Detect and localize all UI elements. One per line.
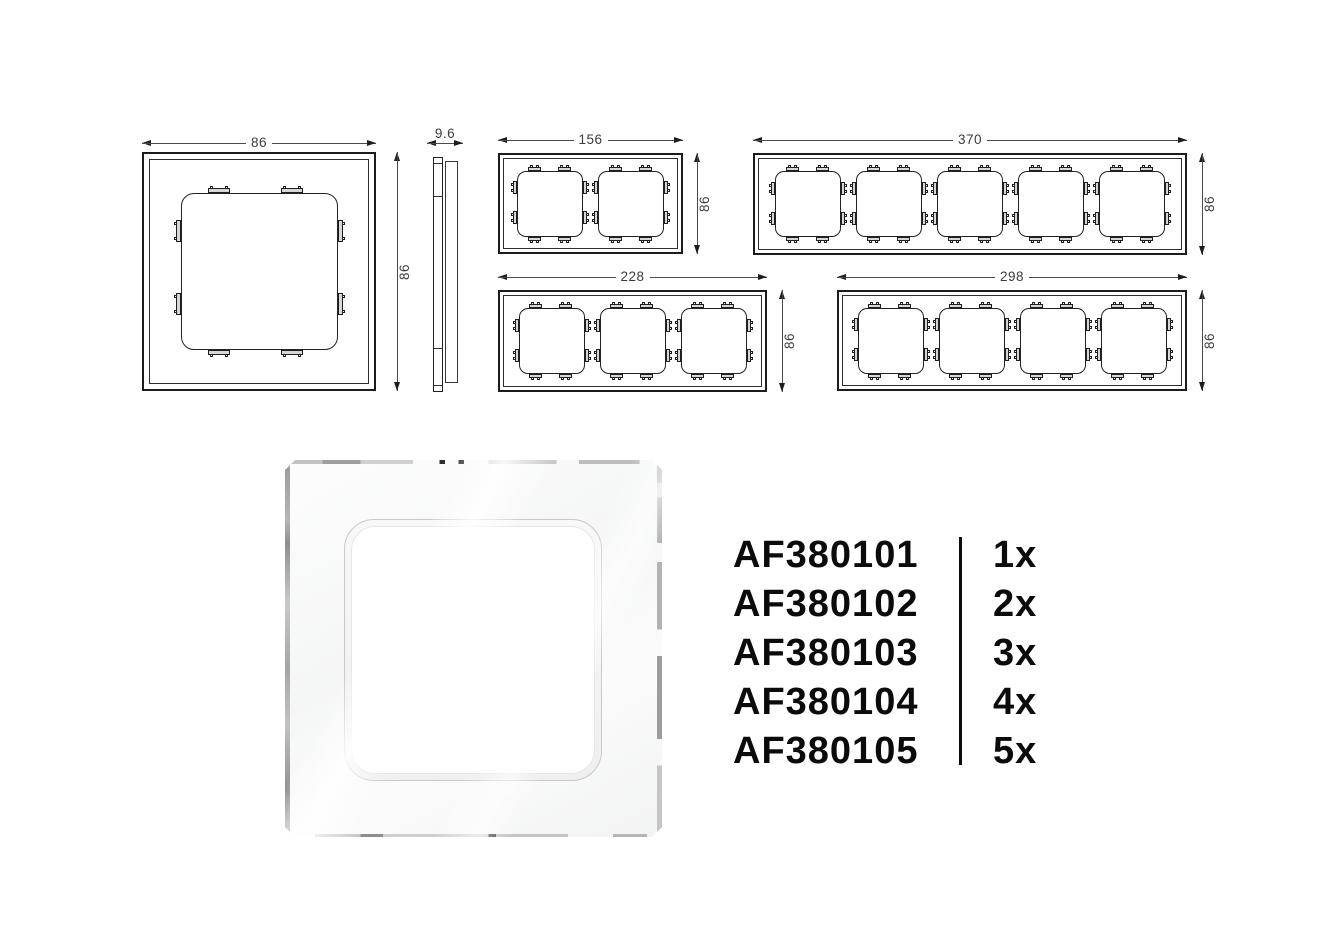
module-opening	[600, 308, 666, 374]
module-clip-tab	[1140, 237, 1153, 241]
module-clip-tab	[1084, 212, 1088, 225]
arrow-down-icon	[394, 382, 400, 391]
module-clip-tab	[1003, 182, 1007, 195]
module-clip-tab	[1140, 167, 1153, 171]
module-clip-tab	[691, 374, 704, 378]
module-clip-tab	[596, 349, 600, 362]
module-clip-tab	[978, 237, 991, 241]
drawing-side-view-glass	[433, 157, 443, 392]
drawing-frame-1gang-front	[142, 152, 376, 391]
product-list: AF380101 1x AF380102 2x AF380103 3x AF38…	[733, 531, 1073, 776]
dimension-height-1gang: 86	[391, 152, 404, 391]
module-clip-tab	[922, 212, 926, 225]
module-clip-tab	[721, 374, 734, 378]
module-clip-tab	[338, 220, 343, 242]
module-clip-tab	[978, 167, 991, 171]
drawing-frame-3gang	[498, 290, 767, 392]
module-clip-tab	[897, 237, 910, 241]
module-clip-tab	[1111, 304, 1124, 308]
module-clip-tab	[609, 237, 622, 241]
arrow-down-icon	[694, 245, 700, 254]
dimension-width-5gang: 370	[753, 134, 1187, 147]
module-clip-tab	[610, 374, 623, 378]
module-clip-tab	[558, 167, 571, 171]
product-code: AF380104	[733, 678, 993, 727]
module-clip-tab	[1016, 348, 1020, 361]
module-opening	[598, 171, 664, 237]
dimension-depth-side: 9.6	[427, 137, 463, 150]
module-clip-tab	[897, 167, 910, 171]
product-quantity: 1x	[993, 531, 1037, 580]
dimension-label: 86	[396, 259, 414, 285]
dimension-label: 86	[781, 328, 799, 354]
module-clip-tab	[640, 374, 653, 378]
module-clip-tab	[585, 349, 589, 362]
arrow-right-icon	[454, 140, 463, 146]
product-code: AF380103	[733, 629, 993, 678]
module-opening	[775, 171, 841, 237]
module-clip-tab	[1086, 318, 1090, 331]
module-clip-tab	[610, 304, 623, 308]
module-clip-tab	[747, 319, 751, 332]
module-clip-tab	[208, 350, 230, 355]
module-clip-tab	[594, 211, 598, 224]
drawing-frame-2gang	[498, 153, 683, 254]
module-clip-tab	[771, 182, 775, 195]
module-clip-tab	[609, 167, 622, 171]
dimension-label: 86	[1201, 328, 1219, 354]
module-clip-tab	[1097, 318, 1101, 331]
module-opening	[681, 308, 747, 374]
arrow-down-icon	[1199, 246, 1205, 255]
module-opening	[1020, 308, 1086, 374]
dimension-width-2gang: 156	[498, 134, 683, 147]
dimension-label: 86	[696, 191, 714, 217]
module-clip-tab	[1095, 212, 1099, 225]
product-row: AF380102 2x	[733, 580, 1073, 629]
module-clip-tab	[841, 212, 845, 225]
module-clip-tab	[640, 304, 653, 308]
module-clip-tab	[841, 182, 845, 195]
product-quantity: 2x	[993, 580, 1037, 629]
product-quantity: 5x	[993, 727, 1037, 776]
product-photo-1gang-frame	[285, 460, 662, 837]
module-clip-tab	[979, 304, 992, 308]
dimension-height-2gang: 86	[691, 153, 704, 254]
module-clip-tab	[1016, 318, 1020, 331]
arrow-down-icon	[1199, 382, 1205, 391]
module-clip-tab	[816, 167, 829, 171]
module-clip-tab	[922, 182, 926, 195]
module-clip-tab	[771, 212, 775, 225]
module-clip-tab	[596, 319, 600, 332]
module-opening	[1018, 171, 1084, 237]
product-code: AF380101	[733, 531, 993, 580]
dimension-label: 228	[615, 269, 649, 284]
product-row: AF380103 3x	[733, 629, 1073, 678]
module-clip-tab	[1003, 212, 1007, 225]
glass-edge-reflection	[285, 460, 662, 464]
module-clip-tab	[1167, 318, 1171, 331]
module-clip-tab	[558, 237, 571, 241]
module-opening	[1099, 171, 1165, 237]
module-clip-tab	[559, 304, 572, 308]
module-clip-tab	[528, 167, 541, 171]
arrow-right-icon	[758, 274, 767, 280]
module-clip-tab	[664, 181, 668, 194]
dimension-label: 156	[573, 132, 607, 147]
module-clip-tab	[1060, 304, 1073, 308]
product-sheet: 86 86 9.6 156 86 370 86	[0, 0, 1333, 933]
module-clip-tab	[691, 304, 704, 308]
dimension-width-3gang: 228	[498, 271, 767, 284]
module-clip-tab	[1141, 304, 1154, 308]
module-clip-tab	[854, 318, 858, 331]
module-clip-tab	[852, 182, 856, 195]
module-clip-tab	[935, 348, 939, 361]
module-clip-tab	[949, 304, 962, 308]
product-row: AF380105 5x	[733, 727, 1073, 776]
module-clip-tab	[852, 212, 856, 225]
module-clip-tab	[1084, 182, 1088, 195]
module-opening	[519, 308, 585, 374]
list-divider	[959, 537, 962, 765]
arrow-right-icon	[1178, 274, 1187, 280]
module-clip-tab	[1030, 304, 1043, 308]
module-clip-tab	[677, 349, 681, 362]
module-clip-tab	[176, 293, 181, 315]
module-clip-tab	[639, 167, 652, 171]
module-clip-tab	[747, 349, 751, 362]
dimension-label: 86	[1201, 191, 1219, 217]
module-clip-tab	[666, 349, 670, 362]
module-clip-tab	[513, 211, 517, 224]
module-clip-tab	[1141, 374, 1154, 378]
drawing-frame-5gang	[753, 153, 1187, 255]
module-clip-tab	[281, 188, 303, 193]
module-clip-tab	[666, 319, 670, 332]
drawing-side-view-carrier	[445, 161, 458, 383]
product-row: AF380104 4x	[733, 678, 1073, 727]
module-clip-tab	[1097, 348, 1101, 361]
module-clip-tab	[208, 188, 230, 193]
product-quantity: 3x	[993, 629, 1037, 678]
product-code: AF380105	[733, 727, 993, 776]
arrow-down-icon	[779, 383, 785, 392]
dimension-height-5gang: 86	[1196, 153, 1209, 255]
product-quantity: 4x	[993, 678, 1037, 727]
module-clip-tab	[867, 237, 880, 241]
module-clip-tab	[559, 374, 572, 378]
module-clip-tab	[1165, 212, 1169, 225]
module-clip-tab	[515, 349, 519, 362]
module-clip-tab	[583, 211, 587, 224]
module-opening	[1101, 308, 1167, 374]
photo-module-opening	[344, 519, 602, 781]
module-clip-tab	[281, 350, 303, 355]
module-clip-tab	[1110, 167, 1123, 171]
module-clip-tab	[948, 237, 961, 241]
arrow-right-icon	[367, 140, 376, 146]
product-code: AF380102	[733, 580, 993, 629]
module-clip-tab	[677, 319, 681, 332]
module-opening	[181, 193, 338, 350]
glass-edge-reflection	[657, 460, 662, 837]
photo-module-opening-inner	[351, 526, 595, 774]
dimension-height-3gang: 86	[776, 290, 789, 392]
module-clip-tab	[949, 374, 962, 378]
module-clip-tab	[1029, 167, 1042, 171]
module-clip-tab	[786, 167, 799, 171]
module-clip-tab	[898, 374, 911, 378]
module-clip-tab	[924, 318, 928, 331]
module-clip-tab	[1059, 167, 1072, 171]
module-opening	[856, 171, 922, 237]
module-clip-tab	[515, 319, 519, 332]
module-opening	[517, 171, 583, 237]
module-opening	[858, 308, 924, 374]
module-clip-tab	[1030, 374, 1043, 378]
module-clip-tab	[979, 374, 992, 378]
arrow-right-icon	[674, 137, 683, 143]
module-clip-tab	[1005, 348, 1009, 361]
module-clip-tab	[1059, 237, 1072, 241]
module-opening	[937, 171, 1003, 237]
module-clip-tab	[639, 237, 652, 241]
glass-edge-reflection	[285, 460, 290, 837]
module-clip-tab	[1014, 212, 1018, 225]
module-clip-tab	[786, 237, 799, 241]
module-clip-tab	[721, 304, 734, 308]
dimension-width-1gang: 86	[142, 137, 376, 150]
module-clip-tab	[935, 318, 939, 331]
dimension-label: 9.6	[433, 126, 457, 141]
drawing-frame-4gang	[837, 290, 1187, 391]
module-clip-tab	[594, 181, 598, 194]
module-clip-tab	[513, 181, 517, 194]
module-clip-tab	[868, 304, 881, 308]
module-clip-tab	[867, 167, 880, 171]
module-clip-tab	[816, 237, 829, 241]
module-clip-tab	[898, 304, 911, 308]
module-clip-tab	[1110, 237, 1123, 241]
module-clip-tab	[664, 211, 668, 224]
dimension-height-4gang: 86	[1196, 290, 1209, 391]
module-clip-tab	[585, 319, 589, 332]
module-clip-tab	[1095, 182, 1099, 195]
module-clip-tab	[529, 374, 542, 378]
module-clip-tab	[924, 348, 928, 361]
module-clip-tab	[338, 293, 343, 315]
module-clip-tab	[1111, 374, 1124, 378]
module-clip-tab	[529, 304, 542, 308]
module-clip-tab	[1167, 348, 1171, 361]
module-opening	[939, 308, 1005, 374]
dimension-label: 86	[246, 135, 272, 150]
arrow-right-icon	[1178, 137, 1187, 143]
module-clip-tab	[1060, 374, 1073, 378]
module-clip-tab	[868, 374, 881, 378]
module-clip-tab	[1165, 182, 1169, 195]
dimension-label: 370	[953, 132, 987, 147]
module-clip-tab	[528, 237, 541, 241]
product-row: AF380101 1x	[733, 531, 1073, 580]
module-clip-tab	[933, 212, 937, 225]
glass-edge-reflection	[285, 834, 662, 837]
module-clip-tab	[933, 182, 937, 195]
module-clip-tab	[1086, 348, 1090, 361]
module-clip-tab	[1029, 237, 1042, 241]
module-clip-tab	[583, 181, 587, 194]
module-clip-tab	[176, 220, 181, 242]
module-clip-tab	[948, 167, 961, 171]
module-clip-tab	[1014, 182, 1018, 195]
dimension-width-4gang: 298	[837, 271, 1187, 284]
module-clip-tab	[854, 348, 858, 361]
module-clip-tab	[1005, 318, 1009, 331]
dimension-label: 298	[995, 269, 1029, 284]
